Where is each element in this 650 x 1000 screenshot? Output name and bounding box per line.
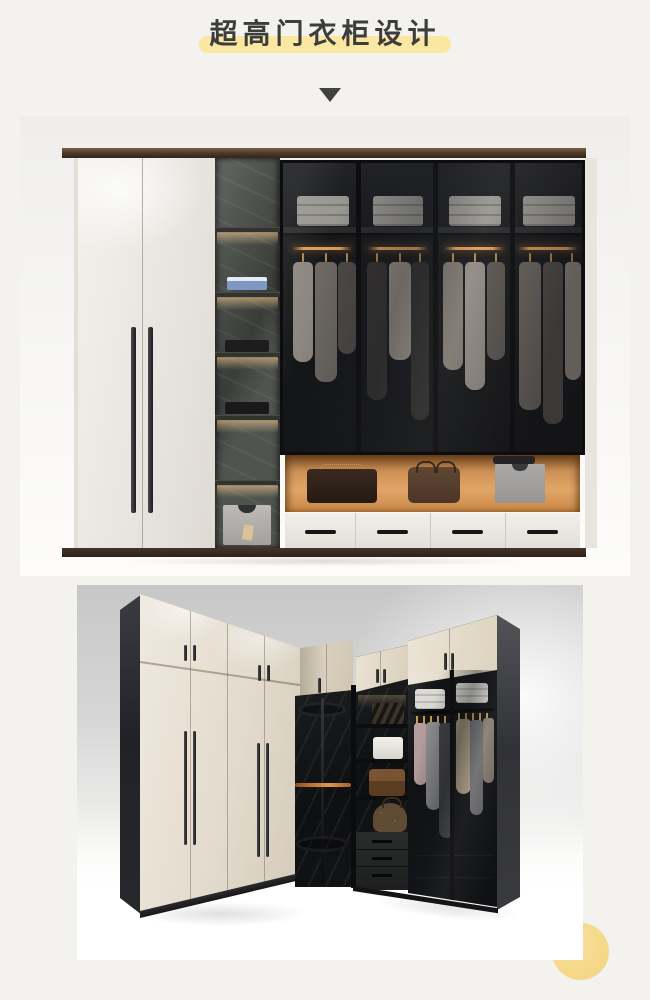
door-handle [258, 665, 261, 681]
chevron-quilted-bag [372, 703, 404, 724]
drawer-seam [356, 866, 408, 867]
drawer-seam [355, 513, 356, 548]
door-handle [383, 669, 386, 683]
leather-briefcase-bag [369, 769, 405, 796]
carcass-divider [351, 685, 356, 888]
top-cabinet [356, 645, 408, 692]
shelving-column [356, 645, 408, 890]
door-seam [380, 645, 381, 692]
wood-top-trim [62, 148, 586, 158]
left-wing-doors [140, 594, 300, 918]
glass-door-section [280, 160, 585, 455]
fabric-storage-box [495, 464, 545, 503]
corner-wardrobe-photo[interactable] [77, 585, 583, 960]
corner-top-cabinet [300, 640, 353, 696]
drawer-handle [452, 530, 483, 534]
white-door-section [78, 158, 215, 548]
drawer-seam [356, 849, 408, 850]
door-seam [227, 594, 228, 918]
drawer-handle [527, 530, 558, 534]
door-handle [184, 731, 187, 845]
title-wrap: 超高门衣柜设计 [203, 14, 446, 53]
led-strip-glow [217, 357, 278, 370]
folded-clothes-dark [225, 340, 269, 352]
interior-shelf [356, 724, 408, 728]
bag-handle [382, 797, 402, 808]
folded-clothes-dark [225, 402, 269, 414]
door-handle [193, 731, 196, 845]
left-carcass-panel [120, 594, 142, 918]
led-strip-glow [217, 297, 278, 310]
drawer-handle [377, 530, 408, 534]
drawer-row [285, 513, 580, 548]
wood-plinth [62, 548, 586, 557]
page-title: 超高门衣柜设计 [209, 14, 440, 53]
door-handle [257, 743, 260, 857]
down-triangle-icon [319, 88, 341, 102]
article-page: { "page": { "background_color": "#f3f2ef… [0, 0, 650, 1000]
rotating-rack-ring [296, 836, 348, 852]
header: 超高门衣柜设计 [0, 14, 650, 53]
right-side-panel [585, 158, 597, 548]
floor-shadow [56, 557, 592, 571]
door-handle [318, 678, 321, 693]
door-handle [266, 743, 269, 857]
bag-handle [436, 461, 456, 473]
rack-wood-bar [295, 783, 351, 787]
flat-wardrobe-photo[interactable] [20, 116, 630, 576]
door-handle [451, 653, 454, 670]
box-notch [512, 464, 528, 471]
drawer-seam [430, 513, 431, 548]
rotating-rack-pole [321, 698, 324, 883]
drawer-handle [372, 840, 392, 843]
drawer-seam [505, 513, 506, 548]
door-seam [326, 640, 327, 696]
box-notch [238, 505, 256, 513]
led-strip-glow [217, 420, 278, 433]
door-handle [444, 653, 447, 670]
interior-shelf [356, 759, 408, 763]
led-strip-glow [217, 232, 278, 245]
felt-storage-box [223, 505, 271, 545]
drawer-handle [372, 857, 392, 860]
glass-door-column [408, 615, 497, 913]
shoes-pair [493, 456, 535, 464]
door-handle [148, 327, 153, 513]
white-quilted-bag [373, 737, 403, 759]
door-handle [184, 645, 187, 661]
glass-reflection [408, 670, 497, 913]
door-seam [140, 661, 304, 686]
led-strip-glow [217, 485, 278, 498]
drawer-stack [356, 832, 408, 890]
folded-towel-blue [227, 277, 267, 290]
display-niche [285, 455, 580, 512]
drawer-handle [305, 530, 336, 534]
door-handle [193, 645, 196, 661]
door-handle [376, 669, 379, 683]
bag-handle [416, 461, 436, 473]
right-carcass-panel [497, 615, 520, 913]
glass-reflection [283, 163, 582, 452]
drawer-handle [372, 874, 392, 877]
door-seam [142, 158, 143, 548]
stone-shelving-column [215, 158, 280, 548]
clutch-bag [307, 469, 377, 503]
door-seam [190, 594, 191, 918]
door-seam [264, 594, 265, 918]
monogram-dome-bag [373, 803, 407, 832]
door-handle [267, 665, 270, 681]
box-hang-tag [242, 524, 254, 540]
monogram-handbag [408, 467, 460, 503]
corner-interior [295, 690, 353, 887]
door-handle [131, 327, 136, 513]
